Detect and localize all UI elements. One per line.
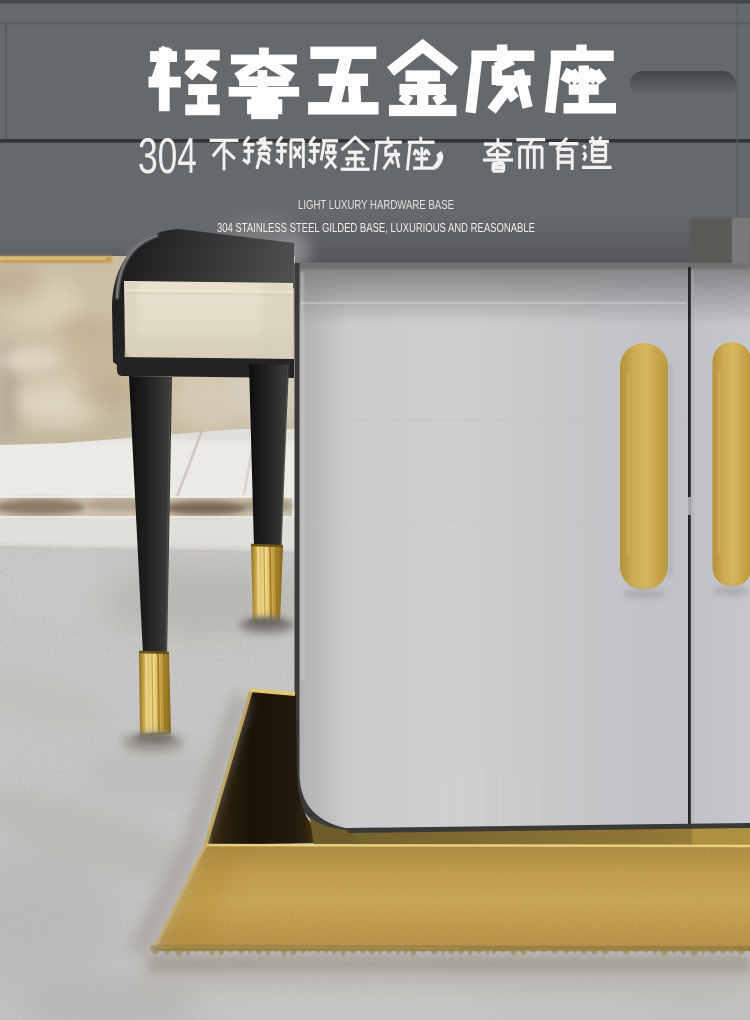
svg-text:304: 304	[138, 129, 197, 184]
svg-text:LIGHT LUXURY HARDWARE BASE: LIGHT LUXURY HARDWARE BASE	[298, 197, 454, 212]
svg-text:304 STAINLESS STEEL GILDED BAS: 304 STAINLESS STEEL GILDED BASE, LUXURIO…	[217, 220, 535, 235]
